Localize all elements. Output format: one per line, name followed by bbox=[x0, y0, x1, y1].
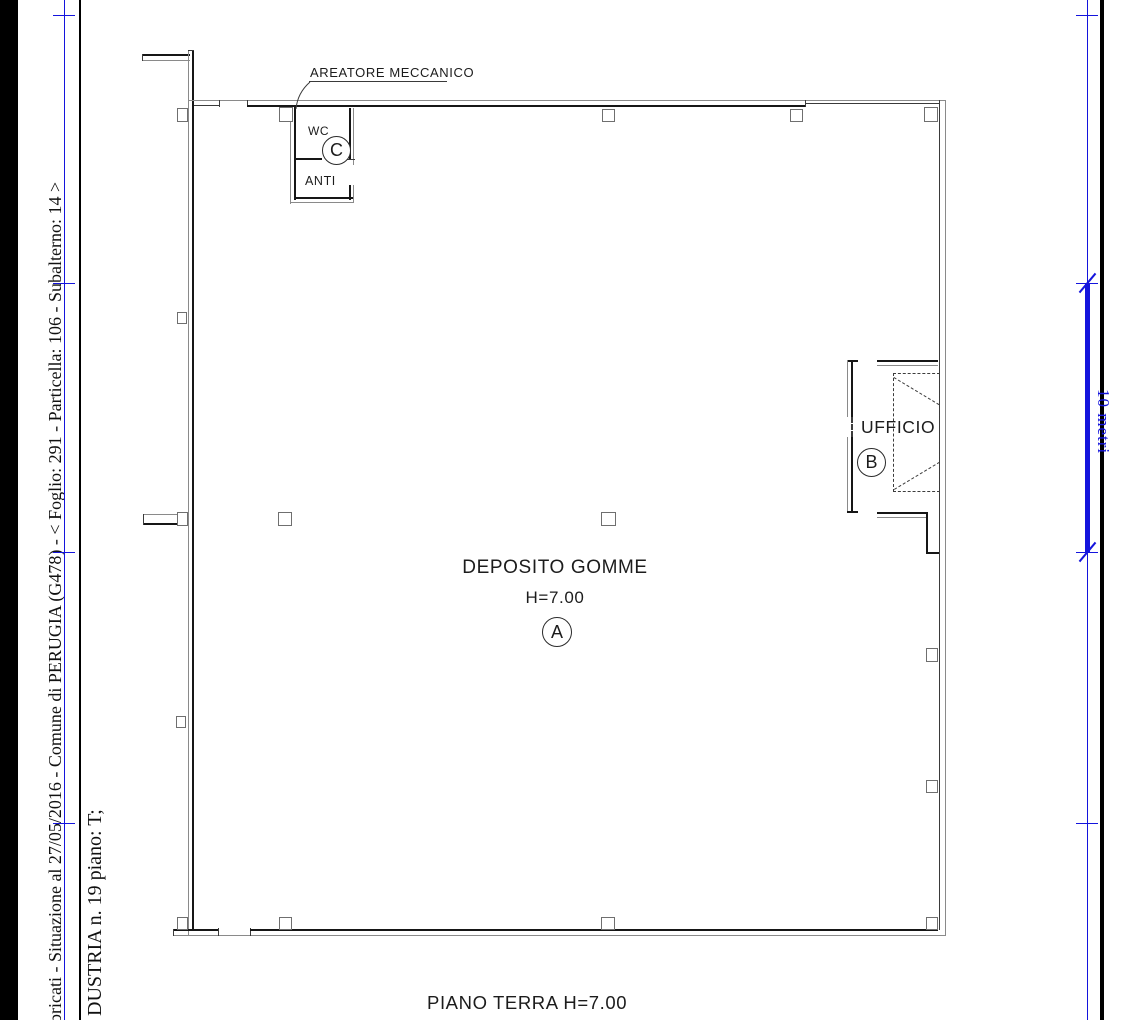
pilaster-bottom-2 bbox=[279, 917, 292, 930]
right-scale-tick-3 bbox=[1076, 552, 1098, 553]
pilaster-right-2 bbox=[926, 780, 938, 793]
ufficio-wall-left-upper-outer bbox=[847, 360, 848, 417]
right-scale-tick-1 bbox=[1076, 15, 1098, 16]
wall-stub-cap bbox=[142, 54, 143, 61]
wc-wall-right-upper-outer bbox=[353, 108, 354, 165]
pilaster-bottom-left-corner bbox=[177, 917, 188, 930]
margin-text-line1: abbricati - Situazione al 27/05/2016 - C… bbox=[45, 182, 66, 1020]
right-scale-segment-10m bbox=[1085, 283, 1090, 552]
wc-wall-bottom-outer bbox=[290, 202, 354, 203]
column-interior-1 bbox=[278, 512, 292, 526]
scale-label-10-metri: 10 metri bbox=[1093, 389, 1113, 454]
pilaster-right-1 bbox=[926, 648, 938, 662]
floor-title: PIANO TERRA H=7.00 bbox=[427, 992, 627, 1014]
areatore-leader-line bbox=[292, 81, 314, 111]
pilaster-left-protrusion bbox=[177, 512, 188, 526]
wall-left-outer bbox=[188, 50, 189, 936]
wc-divider-wall bbox=[296, 158, 322, 160]
wall-top-gap-cap1 bbox=[219, 100, 220, 107]
margin-text-line2: DUSTRIA n. 19 piano: T; bbox=[84, 809, 107, 1016]
ufficio-step-vertical bbox=[926, 512, 928, 554]
frame-border-right bbox=[1100, 0, 1104, 1020]
wall-right-inner bbox=[939, 100, 940, 930]
wall-stub-top-outer bbox=[142, 60, 190, 61]
ufficio-wall-left-lower bbox=[851, 437, 853, 513]
wall-right-outer bbox=[945, 100, 946, 936]
frame-border-left bbox=[79, 0, 81, 1020]
wall-top-inner-b bbox=[247, 105, 805, 107]
left-scale-line bbox=[64, 0, 65, 1020]
wall-top-inner-c bbox=[805, 103, 940, 104]
ufficio-label: UFFICIO bbox=[861, 417, 935, 438]
wall-bottom-gap-cap1 bbox=[218, 928, 219, 936]
wc-label: WC bbox=[308, 124, 329, 138]
ufficio-step-horizontal bbox=[926, 552, 939, 554]
wall-left-inner bbox=[192, 50, 194, 930]
left-scale-tick-3 bbox=[53, 552, 75, 553]
deposito-label: DEPOSITO GOMME bbox=[455, 557, 655, 579]
wc-wall-left-inner bbox=[294, 107, 296, 200]
wall-top-inner-a bbox=[194, 105, 219, 106]
pilaster-bottom-right-corner bbox=[926, 917, 938, 930]
room-circle-c: C bbox=[322, 136, 351, 165]
pilaster-left-1 bbox=[177, 312, 187, 324]
deposito-height-label: H=7.00 bbox=[455, 588, 655, 608]
right-scale-tick-4 bbox=[1076, 823, 1098, 824]
areatore-underline bbox=[309, 81, 447, 82]
pilaster-bottom-3 bbox=[601, 917, 615, 930]
ufficio-bracket-cap-bottom bbox=[847, 511, 858, 513]
right-scale-tick-2 bbox=[1076, 283, 1098, 284]
wall-bottom-inner-b bbox=[250, 929, 938, 931]
ufficio-window-dashed bbox=[851, 417, 853, 437]
room-circle-b: B bbox=[857, 448, 886, 477]
ufficio-wall-bottom bbox=[877, 512, 927, 514]
pilaster-top-right-corner bbox=[924, 107, 938, 122]
cadastral-plan-sheet: abbricati - Situazione al 27/05/2016 - C… bbox=[0, 0, 1127, 1020]
wall-protrusion-cap bbox=[143, 514, 144, 525]
left-scale-tick-4 bbox=[53, 823, 75, 824]
wall-protrusion-thin bbox=[143, 514, 177, 515]
room-circle-a: A bbox=[542, 617, 572, 647]
right-scale-line-bottom bbox=[1087, 552, 1088, 1020]
wall-protrusion-bold bbox=[143, 523, 177, 525]
wall-stub-top bbox=[142, 54, 190, 56]
wall-left-top-cap bbox=[188, 50, 194, 51]
ufficio-wall-top-outer bbox=[877, 365, 938, 366]
pilaster-top-3 bbox=[602, 109, 615, 122]
areatore-label: AREATORE MECCANICO bbox=[310, 65, 474, 80]
ufficio-wall-bottom-outer bbox=[877, 517, 927, 518]
pilaster-top-4 bbox=[790, 109, 803, 122]
scan-black-band bbox=[0, 0, 18, 1020]
wc-wall-right-lower-outer bbox=[353, 185, 354, 203]
ufficio-wall-left-upper bbox=[851, 360, 853, 417]
pilaster-left-2 bbox=[176, 716, 186, 728]
wc-wall-bottom-inner bbox=[294, 197, 353, 199]
ufficio-wall-left-lower-outer bbox=[847, 437, 848, 513]
left-scale-tick-2 bbox=[53, 283, 75, 284]
column-interior-2 bbox=[601, 512, 616, 526]
wall-bottom-outer bbox=[173, 935, 946, 936]
ufficio-wall-top bbox=[877, 360, 938, 362]
pilaster-top-2 bbox=[279, 107, 293, 122]
pilaster-top-left bbox=[177, 108, 188, 122]
anti-label: ANTI bbox=[305, 174, 336, 188]
wall-bottom-left-cap bbox=[173, 929, 174, 936]
right-scale-line-top bbox=[1087, 0, 1088, 283]
left-scale-tick-1 bbox=[53, 15, 75, 16]
